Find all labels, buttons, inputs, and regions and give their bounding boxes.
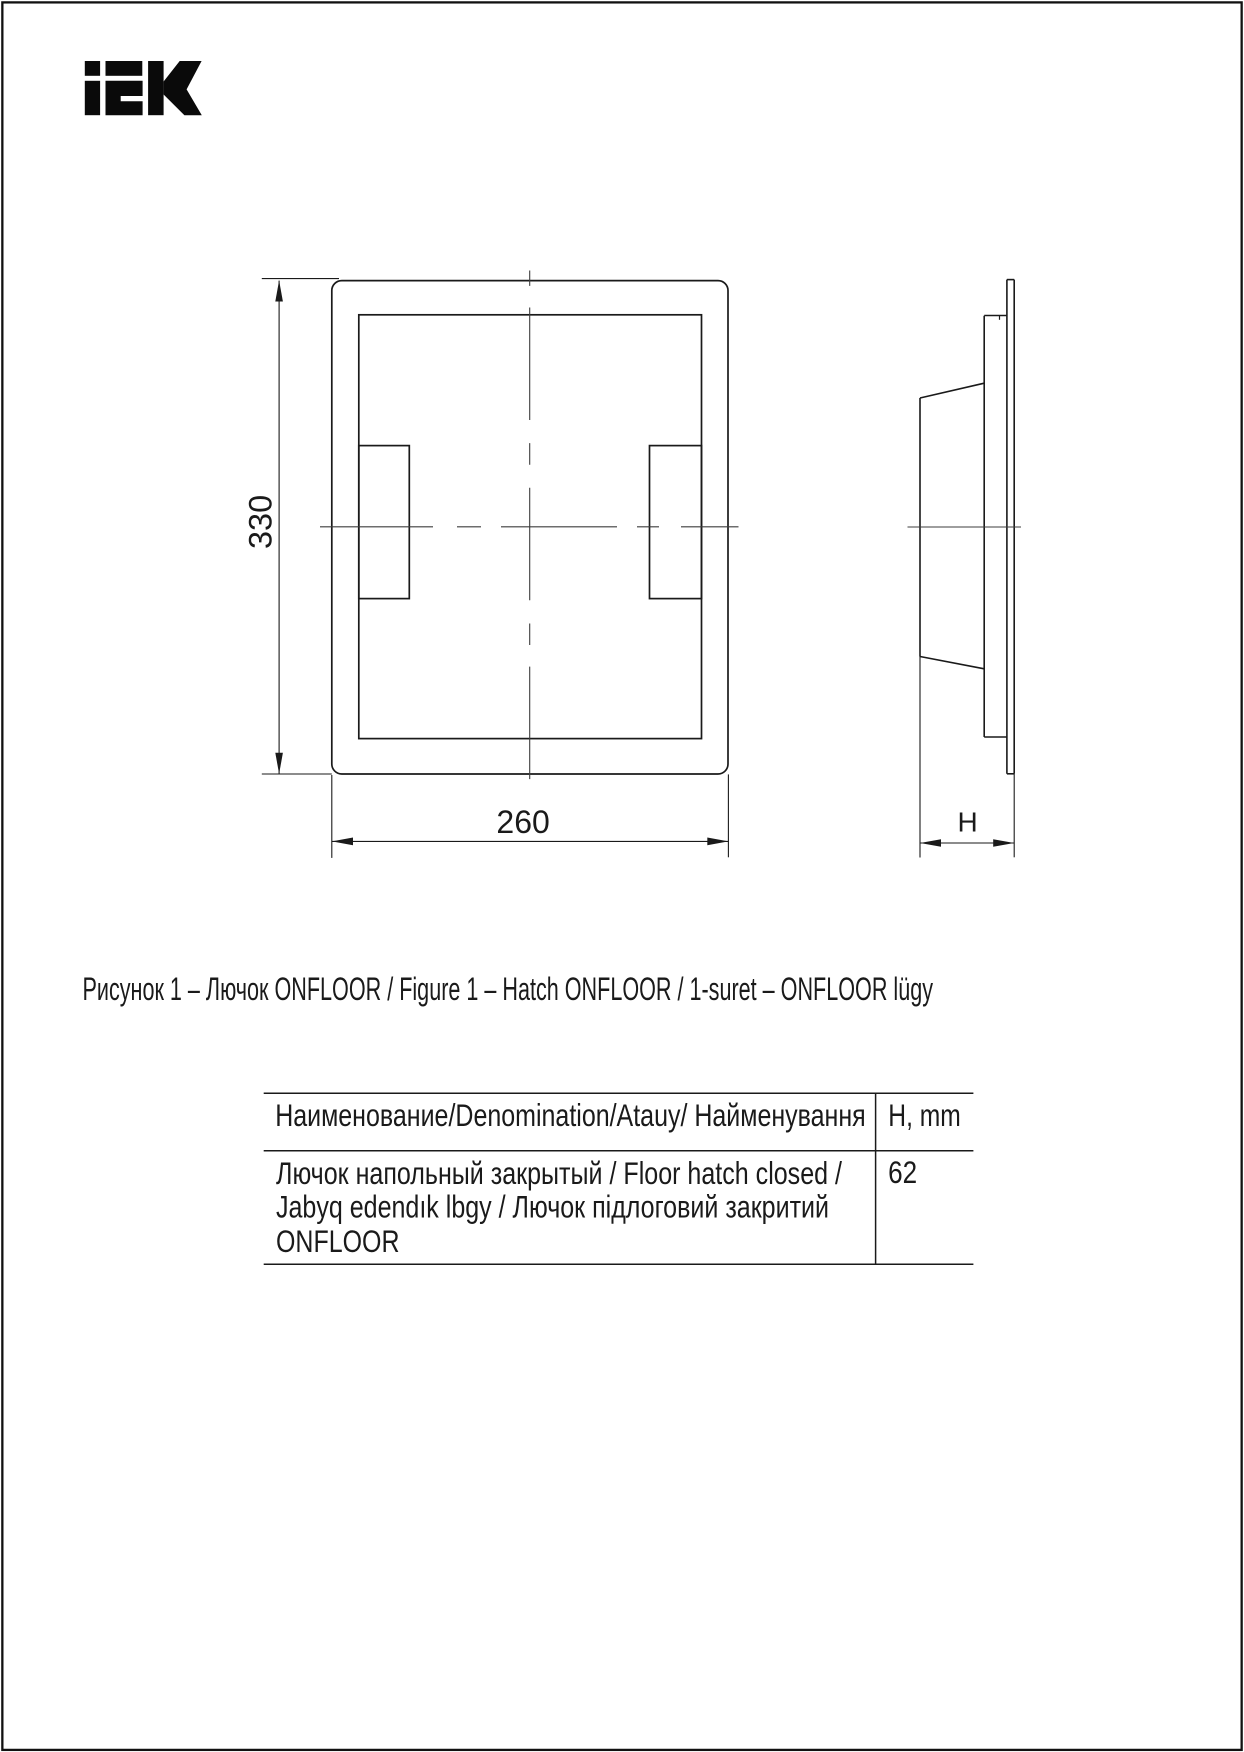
svg-text:H, mm: H, mm [888, 1098, 961, 1133]
svg-text:260: 260 [496, 804, 549, 840]
svg-text:Лючок напольный закрытый / Flo: Лючок напольный закрытый / Floor hatch c… [276, 1156, 842, 1191]
svg-text:Jabyq edendık lbgy / Лючок під: Jabyq edendık lbgy / Лючок підлоговий за… [276, 1190, 829, 1225]
svg-text:62: 62 [888, 1155, 917, 1190]
svg-text:Рисунок 1 – Лючок ONFLOOR / Fi: Рисунок 1 – Лючок ONFLOOR / Figure 1 – H… [83, 971, 934, 1007]
svg-text:H: H [957, 807, 977, 838]
svg-text:Наименование/Denomination/Atau: Наименование/Denomination/Atauy/ Наймену… [275, 1098, 866, 1133]
svg-text:ONFLOOR: ONFLOOR [276, 1224, 400, 1259]
svg-text:330: 330 [242, 495, 278, 549]
